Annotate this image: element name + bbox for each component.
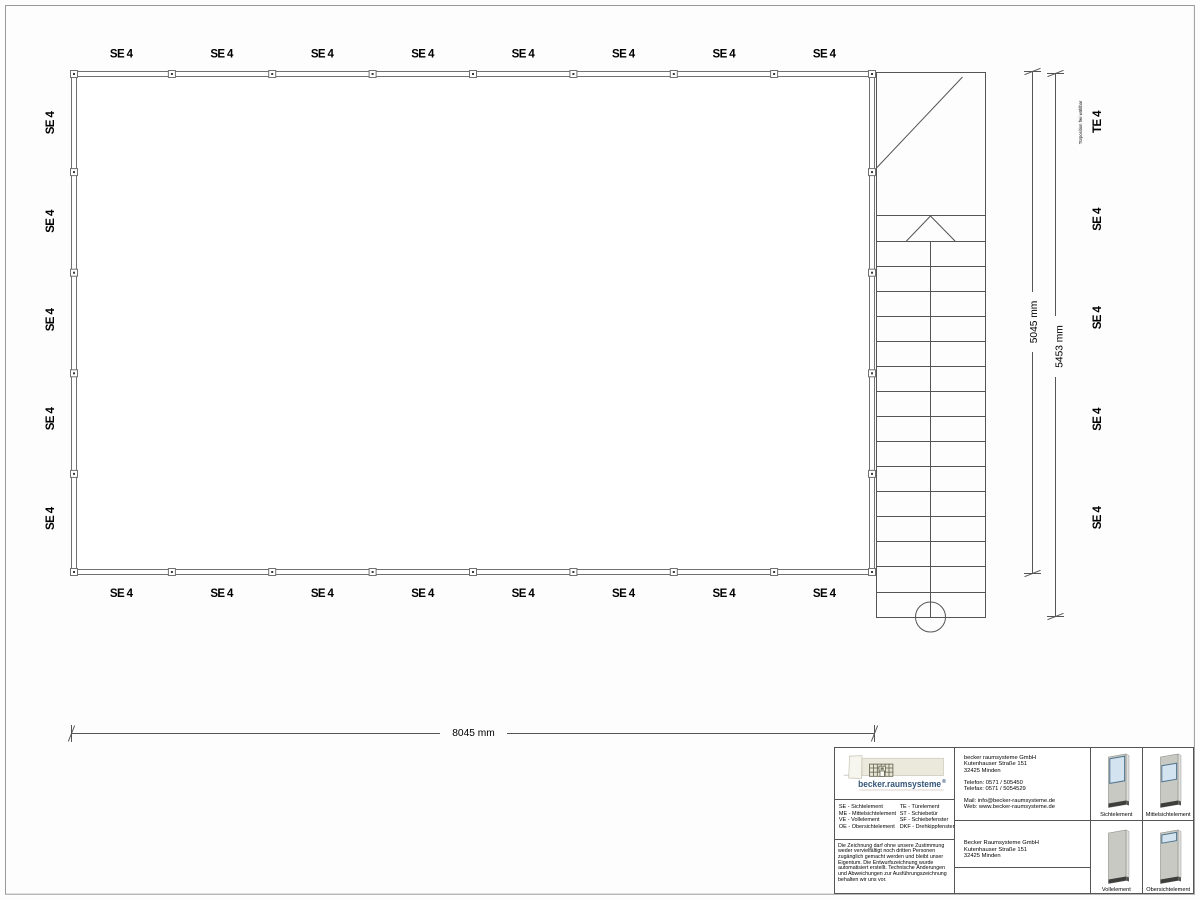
svg-text:SE 4: SE 4	[713, 588, 737, 600]
svg-text:SE 4: SE 4	[411, 48, 435, 60]
svg-text:SE 4: SE 4	[1092, 207, 1104, 231]
svg-text:SE 4: SE 4	[210, 48, 234, 60]
svg-text:SE 4: SE 4	[813, 588, 837, 600]
svg-text:SE 4: SE 4	[45, 308, 57, 332]
svg-text:5045 mm: 5045 mm	[1029, 301, 1040, 343]
svg-text:SE 4: SE 4	[813, 48, 837, 60]
svg-text:SE 4: SE 4	[210, 588, 234, 600]
svg-text:SE 4: SE 4	[1092, 306, 1104, 330]
svg-text:SE 4: SE 4	[311, 588, 335, 600]
svg-text:SE 4: SE 4	[45, 209, 57, 233]
svg-text:SE 4: SE 4	[1092, 506, 1104, 530]
svg-text:Türposition frei wählbar: Türposition frei wählbar	[1078, 100, 1083, 144]
svg-text:SE 4: SE 4	[1092, 407, 1104, 431]
svg-text:SE 4: SE 4	[612, 48, 636, 60]
svg-text:5453 mm: 5453 mm	[1054, 325, 1065, 367]
svg-text:SE 4: SE 4	[713, 48, 737, 60]
svg-text:SE 4: SE 4	[311, 48, 335, 60]
svg-text:SE 4: SE 4	[512, 48, 536, 60]
svg-text:SE 4: SE 4	[45, 506, 57, 530]
svg-text:SE 4: SE 4	[411, 588, 435, 600]
svg-text:TE 4: TE 4	[1092, 110, 1104, 133]
svg-text:SE 4: SE 4	[612, 588, 636, 600]
svg-text:8045 mm: 8045 mm	[452, 728, 494, 739]
svg-text:SE 4: SE 4	[45, 407, 57, 431]
svg-text:SE 4: SE 4	[45, 111, 57, 135]
svg-text:SE 4: SE 4	[110, 588, 134, 600]
svg-text:SE 4: SE 4	[110, 48, 134, 60]
svg-text:®: ®	[942, 778, 946, 785]
svg-text:SE 4: SE 4	[512, 588, 536, 600]
svg-text:becker.raumsysteme: becker.raumsysteme	[858, 779, 941, 789]
